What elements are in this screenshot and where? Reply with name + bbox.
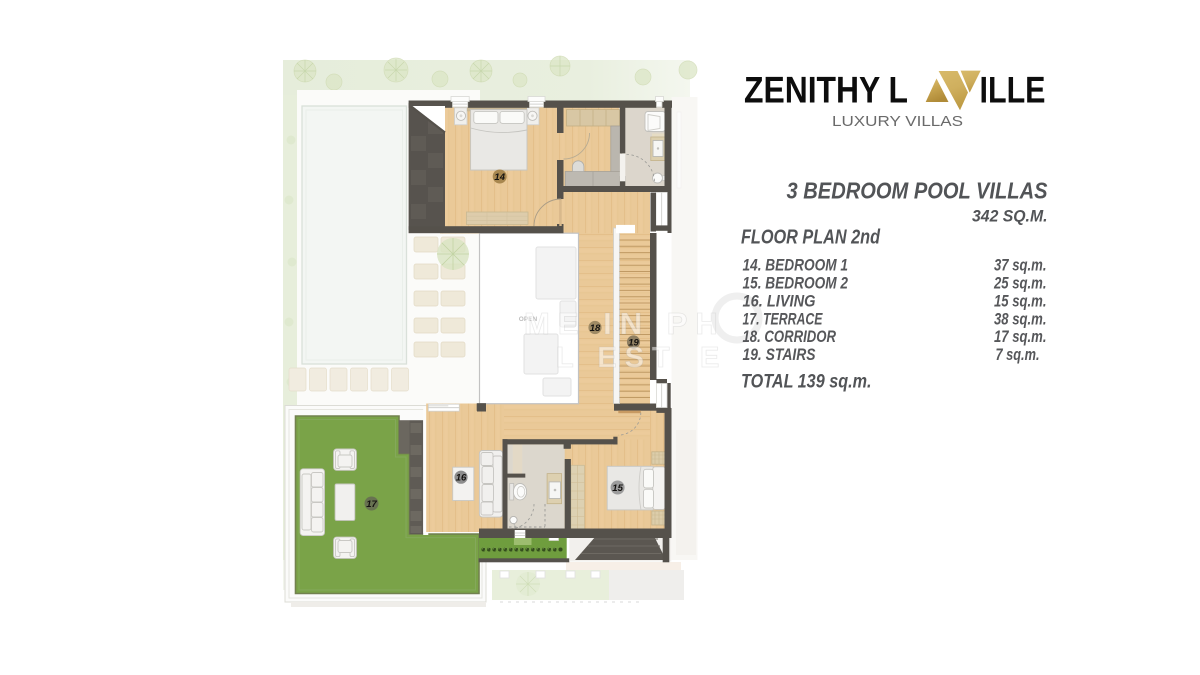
svg-text:3 BEDROOM POOL VILLAS: 3 BEDROOM POOL VILLAS [787,178,1049,204]
svg-text:19. STAIRS: 19. STAIRS [743,346,816,364]
svg-text:25 sq.m.: 25 sq.m. [993,275,1046,293]
svg-text:342 SQ.M.: 342 SQ.M. [972,207,1048,226]
svg-text:17 sq.m.: 17 sq.m. [994,328,1047,346]
svg-text:L EST: L EST [556,342,678,374]
svg-text:16. LIVING: 16. LIVING [743,292,816,310]
svg-text:ZENITHY L: ZENITHY L [744,70,908,111]
svg-text:17: 17 [366,499,377,510]
svg-text:14: 14 [494,172,505,183]
svg-text:37 sq.m.: 37 sq.m. [994,257,1047,275]
svg-text:15: 15 [612,483,623,494]
svg-text:FLOOR PLAN 2nd: FLOOR PLAN 2nd [741,227,881,249]
svg-text:14. BEDROOM 1: 14. BEDROOM 1 [743,257,849,275]
svg-text:E: E [700,342,727,374]
svg-text:15 sq.m.: 15 sq.m. [994,292,1047,310]
svg-text:TOTAL 139 sq.m.: TOTAL 139 sq.m. [741,371,872,393]
svg-text:17. TERRACE: 17. TERRACE [743,310,824,328]
svg-text:15. BEDROOM 2: 15. BEDROOM 2 [743,275,849,293]
svg-text:38 sq.m.: 38 sq.m. [994,310,1047,328]
svg-text:16: 16 [456,473,467,484]
svg-text:ME IN PH: ME IN PH [524,306,726,341]
svg-text:18. CORRIDOR: 18. CORRIDOR [743,328,837,346]
svg-text:7 sq.m.: 7 sq.m. [996,346,1040,364]
svg-text:LUXURY VILLAS: LUXURY VILLAS [832,113,963,130]
svg-text:ILLE: ILLE [980,70,1046,111]
